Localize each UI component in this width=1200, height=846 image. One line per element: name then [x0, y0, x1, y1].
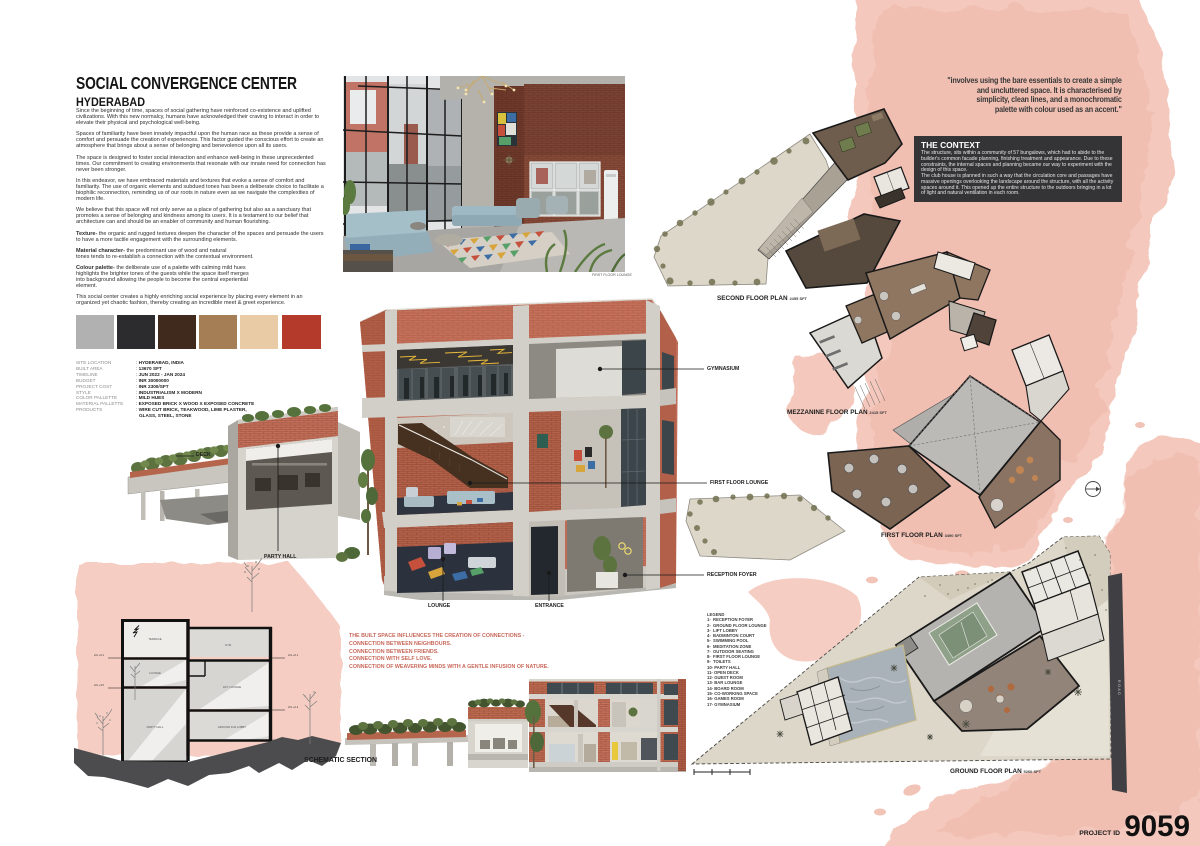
svg-text:LVL +6.1: LVL +6.1 — [94, 653, 105, 657]
svg-text:LIFT LOUNGE: LIFT LOUNGE — [223, 685, 241, 689]
svg-text:GYM: GYM — [225, 643, 232, 647]
svg-text:LVL +3.0: LVL +3.0 — [94, 683, 105, 687]
svg-text:GROUND FLR LOBBY: GROUND FLR LOBBY — [218, 725, 247, 729]
svg-text:LOUNGE: LOUNGE — [149, 671, 161, 675]
svg-text:LVL +2.4: LVL +2.4 — [288, 705, 299, 709]
svg-text:PARTY HALL: PARTY HALL — [147, 725, 164, 729]
svg-text:LVL +6.1: LVL +6.1 — [288, 653, 299, 657]
svg-text:TERRACE: TERRACE — [148, 637, 161, 641]
svg-text:ROAD: ROAD — [1117, 680, 1121, 696]
